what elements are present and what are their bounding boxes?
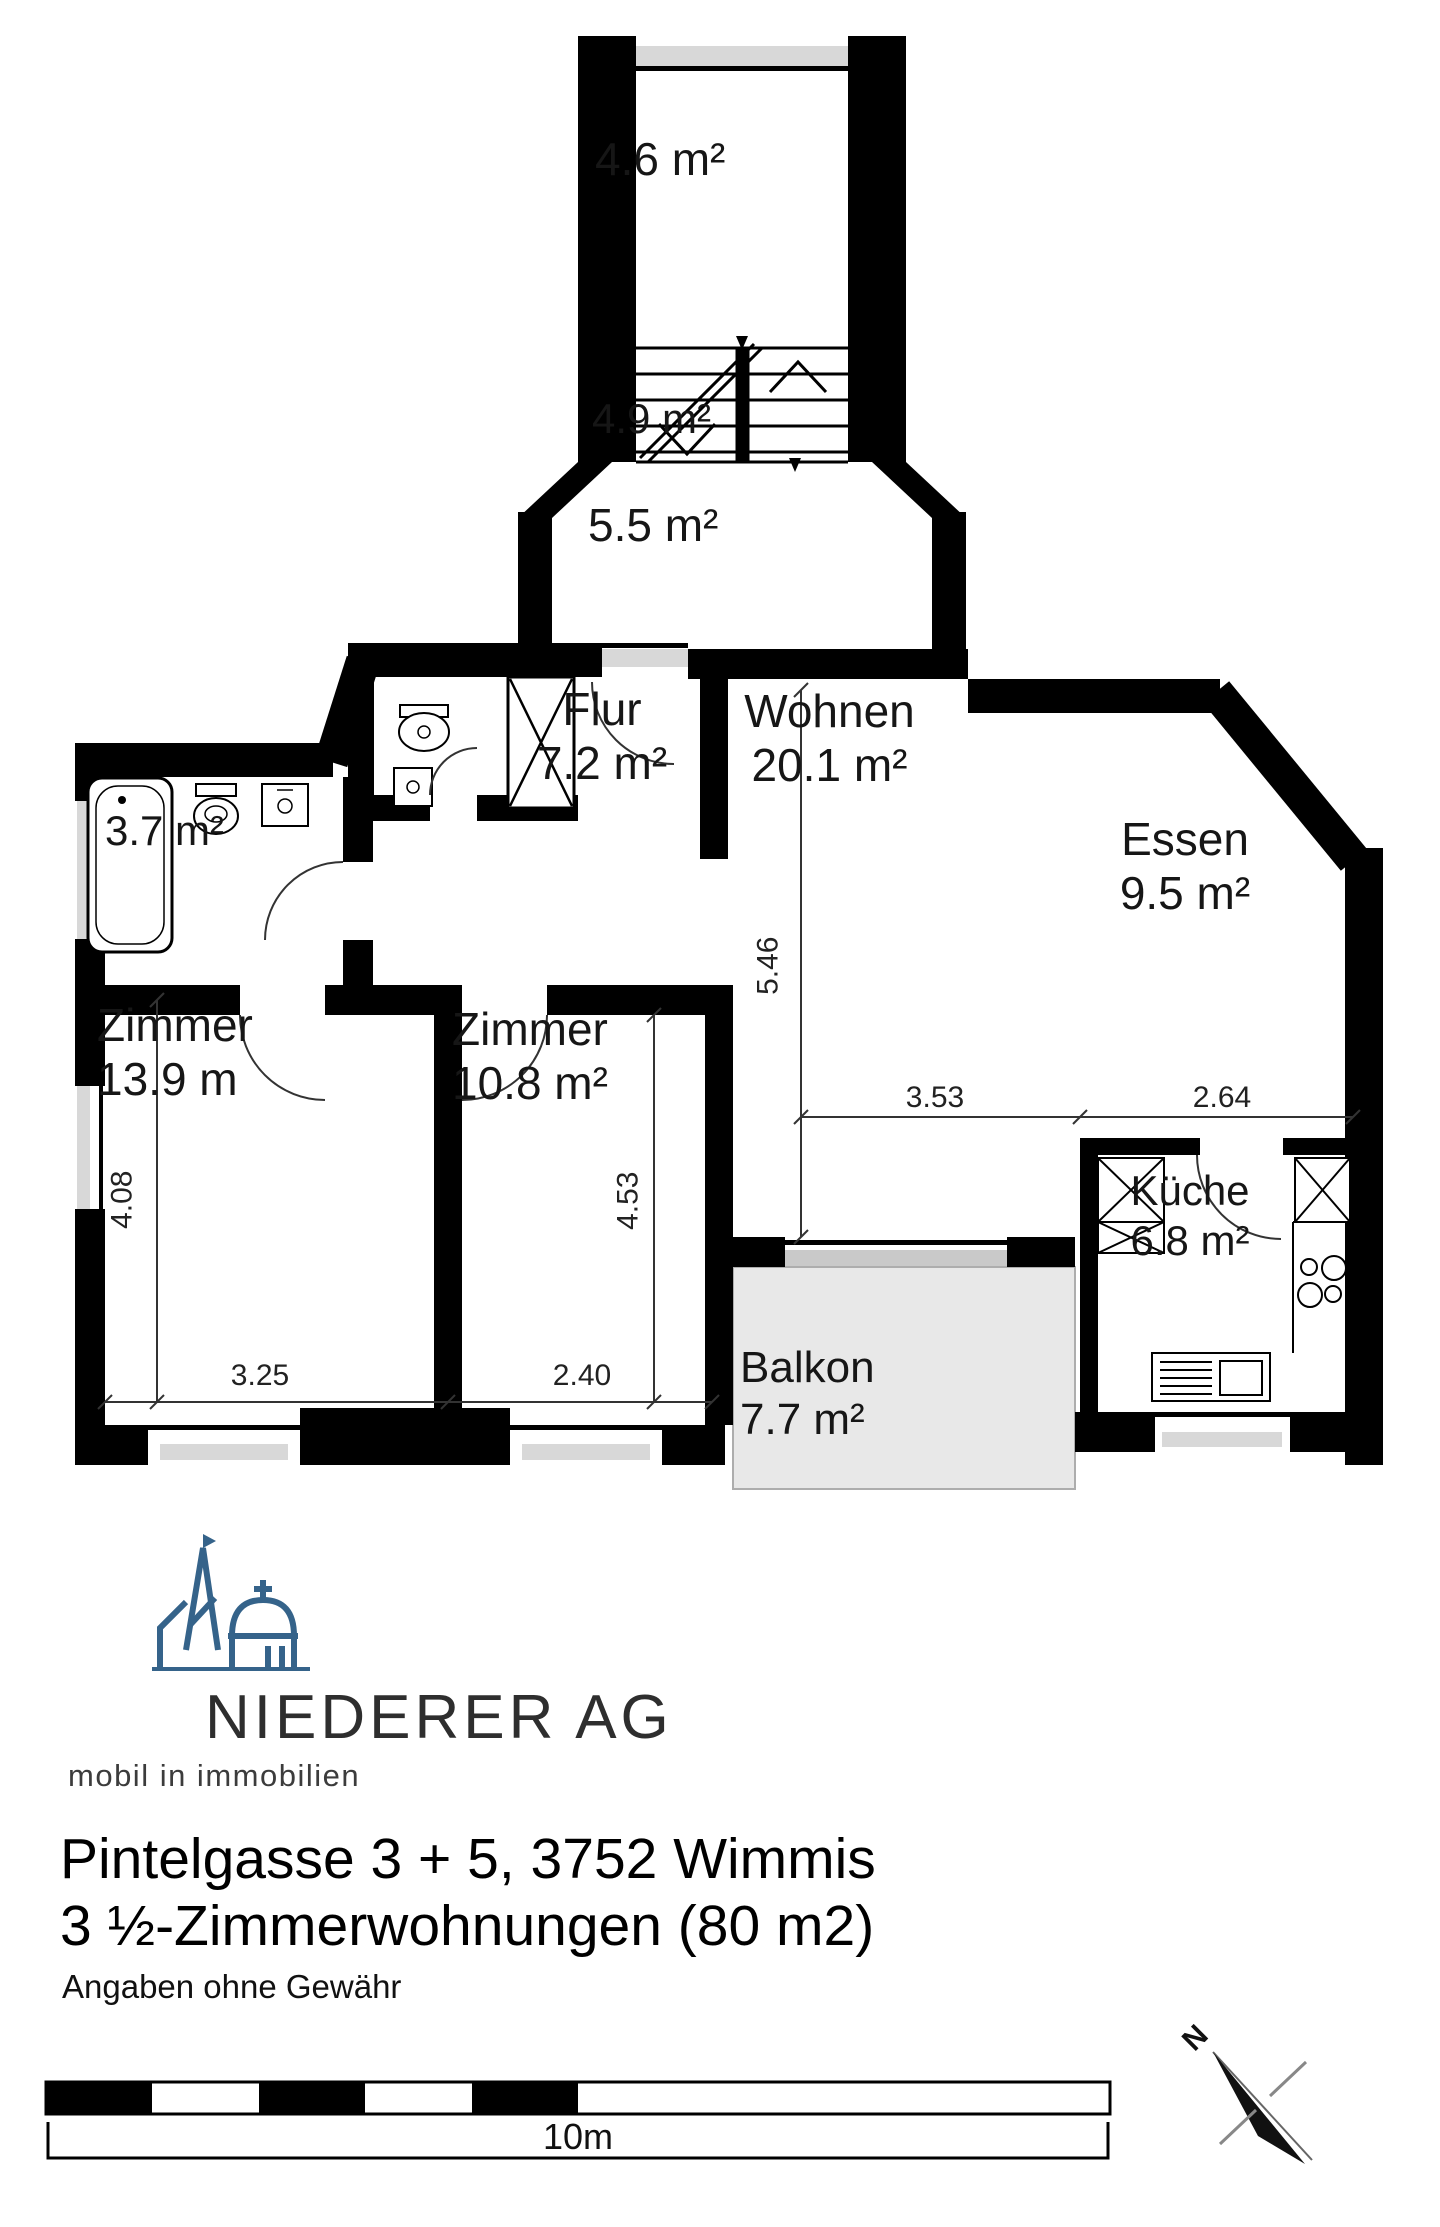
bathtub-icon bbox=[88, 778, 172, 952]
stair-up-arrow bbox=[770, 362, 826, 392]
bad-area-label: 3.7 m² bbox=[105, 806, 224, 856]
dim-wohnen-depth: 5.46 bbox=[750, 926, 785, 1006]
zimmer2-area: 10.8 m² bbox=[452, 1056, 608, 1110]
balcony-door-wall bbox=[705, 1237, 1075, 1267]
zimmer1-label: Zimmer 13.9 m bbox=[97, 998, 253, 1107]
stairwell-lower-landing bbox=[518, 462, 966, 655]
dim-wohnen-width: 3.53 bbox=[890, 1080, 980, 1115]
stairs-area-label: 4.9 m² bbox=[592, 394, 711, 444]
essen-area: 9.5 m² bbox=[1085, 866, 1285, 920]
listing-unit-type: 3 ½-Zimmerwohnungen (80 m2) bbox=[60, 1893, 874, 1959]
kueche-area: 6.8 m² bbox=[1090, 1216, 1290, 1266]
wohnen-area: 20.1 m² bbox=[722, 738, 937, 792]
flur-label: Flur 7.2 m² bbox=[512, 682, 692, 791]
wohnen-label: Wohnen 20.1 m² bbox=[722, 684, 937, 793]
stairwell-upper-area-label: 4.6 m² bbox=[595, 132, 725, 186]
zimmer1-area: 13.9 m bbox=[97, 1052, 253, 1106]
dim-zimmer1-width: 3.25 bbox=[215, 1358, 305, 1393]
essen-name: Essen bbox=[1085, 812, 1285, 866]
kitchen-sink-icon bbox=[1152, 1353, 1270, 1401]
dim-kueche-width: 2.64 bbox=[1177, 1080, 1267, 1115]
stove-icon bbox=[1298, 1256, 1346, 1307]
company-tagline: mobil in immobilien bbox=[68, 1758, 360, 1794]
wohnen-name: Wohnen bbox=[722, 684, 937, 738]
balkon-area: 7.7 m² bbox=[740, 1394, 875, 1446]
wc-door-arc bbox=[430, 748, 477, 795]
flur-area: 7.2 m² bbox=[512, 736, 692, 790]
wc-sink-icon bbox=[394, 768, 432, 806]
north-arrow-icon bbox=[1213, 2052, 1312, 2164]
scale-bar-label: 10m bbox=[518, 2116, 638, 2158]
stairwell-lower-area-label: 5.5 m² bbox=[588, 498, 718, 552]
essen-label: Essen 9.5 m² bbox=[1085, 812, 1285, 921]
zimmer2-name: Zimmer bbox=[452, 1002, 608, 1056]
balkon-label: Balkon 7.7 m² bbox=[740, 1342, 875, 1446]
bath-sink-icon bbox=[262, 784, 308, 826]
listing-address: Pintelgasse 3 + 5, 3752 Wimmis bbox=[60, 1826, 876, 1892]
kueche-name: Küche bbox=[1090, 1166, 1290, 1216]
bath-door-arc bbox=[265, 862, 343, 940]
zimmer2-label: Zimmer 10.8 m² bbox=[452, 1002, 608, 1111]
kueche-label: Küche 6.8 m² bbox=[1090, 1166, 1290, 1265]
listing-disclaimer: Angaben ohne Gewähr bbox=[62, 1968, 401, 2006]
flur-name: Flur bbox=[512, 682, 692, 736]
dim-zimmer2-depth: 4.53 bbox=[610, 1161, 645, 1241]
dim-zimmer2-width: 2.40 bbox=[537, 1358, 627, 1393]
floorplan-page: 4.6 m² 4.9 m² 5.5 m² Flur 7.2 m² Wohnen … bbox=[0, 0, 1440, 2227]
wc-toilet-icon bbox=[399, 705, 449, 751]
sliding-door bbox=[785, 1250, 1007, 1266]
dim-zimmer1-depth: 4.08 bbox=[104, 1160, 139, 1240]
fridge-icon bbox=[1295, 1158, 1350, 1222]
niederer-logo-icon bbox=[152, 1534, 310, 1669]
zimmer1-name: Zimmer bbox=[97, 998, 253, 1052]
balkon-name: Balkon bbox=[740, 1342, 875, 1394]
entry-doorway bbox=[602, 649, 688, 667]
company-name: NIEDERER AG bbox=[205, 1682, 673, 1753]
